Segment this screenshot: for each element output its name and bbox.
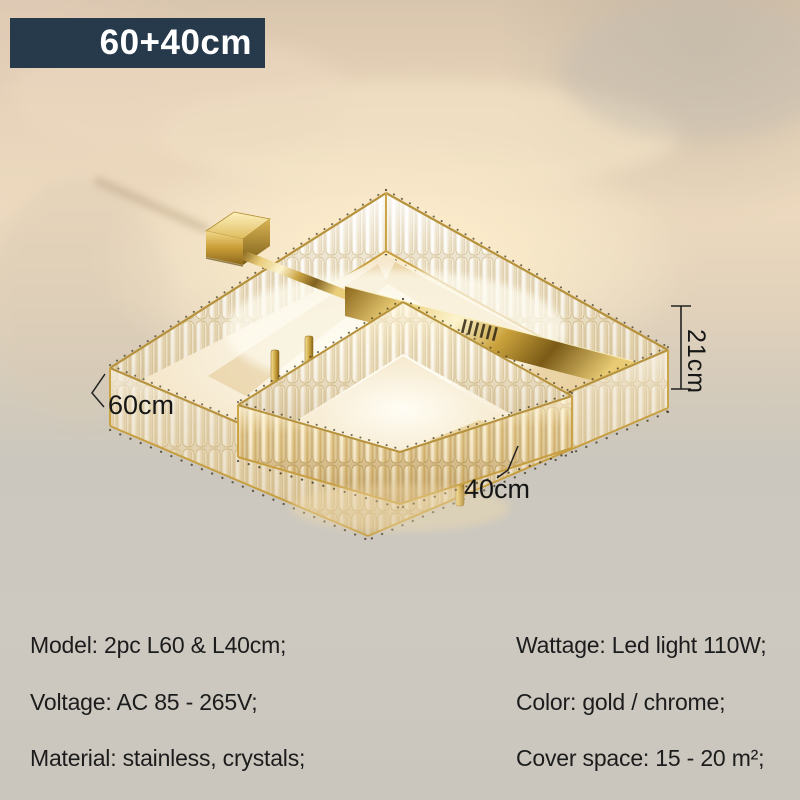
dimension-label-inner-width: 40cm <box>464 476 530 503</box>
spec-material: Material: stainless, crystals; <box>30 743 305 773</box>
spec-color: Color: gold / chrome; <box>516 687 725 717</box>
size-badge: 60+40cm <box>10 18 265 68</box>
spec-cover-space: Cover space: 15 - 20 m²; <box>516 743 764 773</box>
size-badge-label: 60+40cm <box>100 23 252 63</box>
dimension-label-height: 21cm <box>683 329 708 394</box>
spec-wattage: Wattage: Led light 110W; <box>516 630 766 660</box>
spec-voltage: Voltage: AC 85 - 265V; <box>30 687 257 717</box>
dimension-label-outer-width: 60cm <box>108 392 174 419</box>
product-image: 60+40cm 60cm 40cm 21cm Model: 2pc L60 & … <box>0 0 800 800</box>
spec-model: Model: 2pc L60 & L40cm; <box>30 630 286 660</box>
